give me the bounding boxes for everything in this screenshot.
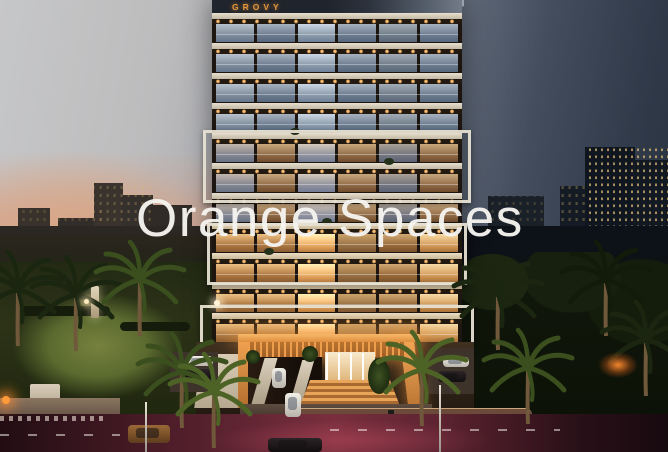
palm-park-tall [96,242,184,336]
street-lamp-glow [2,396,10,404]
architectural-render-photo: GROVY [0,0,668,452]
light-pole [145,402,147,452]
palm-foreground-big [484,330,572,424]
landscape-uplight [598,352,638,378]
palm-far-left [0,252,62,346]
light-pole [439,385,441,452]
garden-lamp [84,299,89,304]
palm-entrance-right [378,332,466,426]
palm-right-3 [602,302,668,396]
palm-right-1 [454,256,542,350]
watermark-text: Orange Spaces [136,188,524,249]
garden-lamp [214,300,220,306]
